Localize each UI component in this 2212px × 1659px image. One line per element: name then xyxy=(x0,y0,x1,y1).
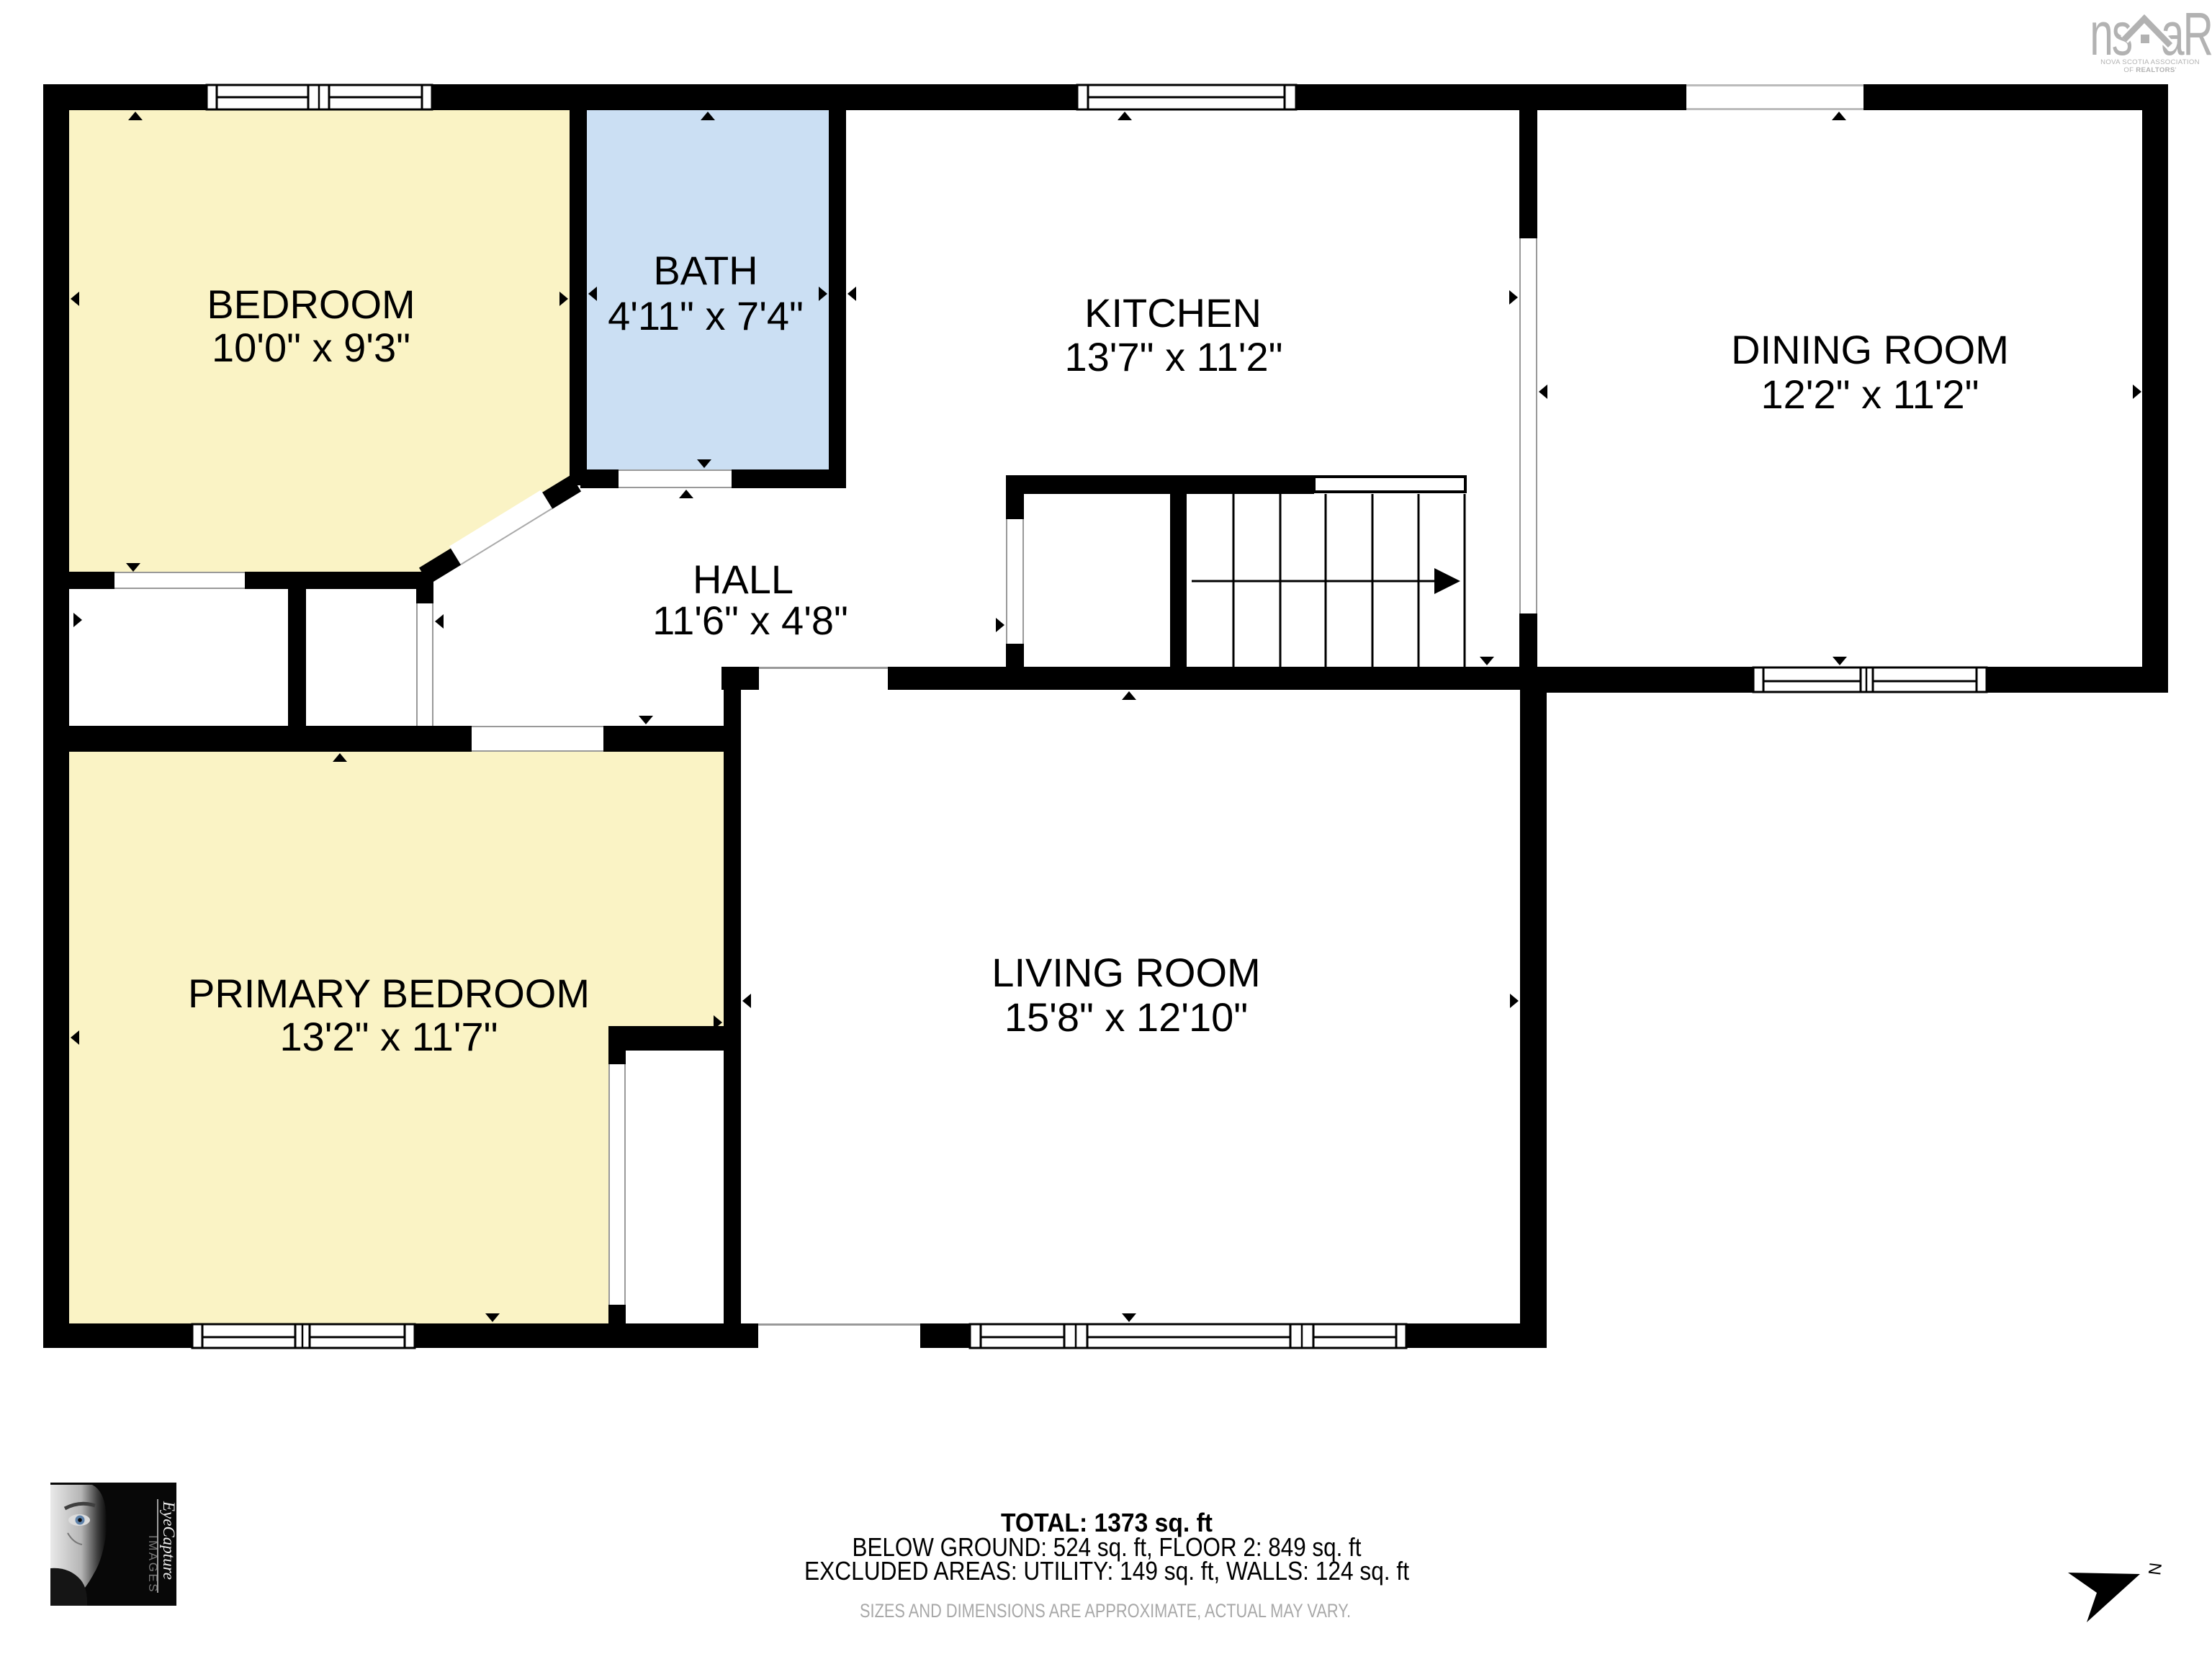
svg-text:NOVA SCOTIA ASSOCIATION: NOVA SCOTIA ASSOCIATION xyxy=(2100,58,2200,66)
svg-text:KITCHEN: KITCHEN xyxy=(1084,290,1262,336)
svg-text:DINING ROOM: DINING ROOM xyxy=(1731,327,2009,372)
svg-text:15'8" x 12'10": 15'8" x 12'10" xyxy=(1004,994,1248,1040)
svg-text:IMAGES: IMAGES xyxy=(146,1535,160,1593)
svg-text:4'11" x 7'4": 4'11" x 7'4" xyxy=(608,293,804,338)
svg-text:HALL: HALL xyxy=(693,557,793,602)
svg-text:LIVING ROOM: LIVING ROOM xyxy=(992,950,1260,995)
svg-text:BEDROOM: BEDROOM xyxy=(207,282,415,327)
svg-text:12'2" x 11'2": 12'2" x 11'2" xyxy=(1761,372,1979,417)
svg-text:11'6" x 4'8": 11'6" x 4'8" xyxy=(652,598,848,643)
svg-text:OF REALTORS': OF REALTORS' xyxy=(2123,66,2176,74)
svg-text:EXCLUDED AREAS: UTILITY: 149 s: EXCLUDED AREAS: UTILITY: 149 sq. ft, WAL… xyxy=(804,1556,1409,1586)
svg-text:13'2" x 11'7": 13'2" x 11'7" xyxy=(280,1014,498,1059)
svg-text:PRIMARY BEDROOM: PRIMARY BEDROOM xyxy=(188,971,590,1016)
svg-text:BATH: BATH xyxy=(653,248,757,293)
svg-text:13'7" x 11'2": 13'7" x 11'2" xyxy=(1065,334,1283,379)
svg-text:10'0" x 9'3": 10'0" x 9'3" xyxy=(212,325,410,370)
svg-text:EyeCapture: EyeCapture xyxy=(160,1501,178,1580)
svg-text:N: N xyxy=(2144,1561,2165,1576)
svg-text:SIZES AND DIMENSIONS ARE APPRO: SIZES AND DIMENSIONS ARE APPROXIMATE, AC… xyxy=(860,1600,1351,1622)
